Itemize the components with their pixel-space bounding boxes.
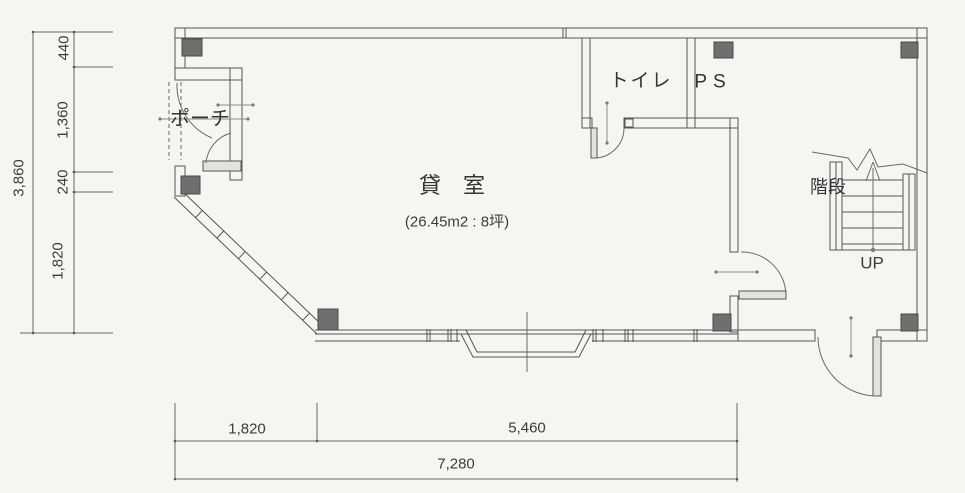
stairs-structure [812, 149, 927, 252]
stair-door-swing-arc [741, 252, 786, 295]
column [181, 176, 200, 194]
floor-plan: 貸 室 (26.45m2 : 8坪) ポーチ トイレ PS 階段 UP 440 … [0, 0, 965, 493]
column [713, 314, 731, 331]
dim-left-1360: 1,360 [56, 101, 71, 139]
column [901, 42, 918, 58]
toilet-door-swing-arc [594, 128, 624, 158]
room-label-porch: ポーチ [170, 109, 230, 129]
room-area-label: (26.45m2 : 8坪) [405, 215, 509, 230]
porch-door-leaf [203, 161, 241, 171]
toilet-door-leaf [591, 128, 597, 158]
column [901, 314, 918, 331]
room-label-toilet: トイレ [609, 72, 672, 91]
toilet-door-stop [625, 119, 633, 127]
column [318, 309, 338, 330]
stairs-up-arrow [866, 162, 880, 252]
stairwell-west-wall [714, 118, 852, 358]
stairwell-south-wall [738, 330, 927, 396]
exterior-door-swing-arc [818, 337, 877, 396]
columns [181, 39, 918, 331]
dim-bottom-5460: 5,460 [508, 421, 546, 436]
bay-window [461, 312, 591, 372]
dim-bottom-1820: 1,820 [228, 422, 266, 437]
dim-left-total-3860: 3,860 [12, 159, 27, 197]
stairs-up-label: UP [860, 255, 884, 272]
dim-left-240: 240 [56, 169, 71, 194]
south-window-wall [315, 312, 738, 372]
dim-left-1820: 1,820 [51, 242, 66, 280]
dim-left-440: 440 [57, 35, 72, 60]
room-label-ps: PS [694, 73, 731, 92]
stairs-break-line [812, 149, 927, 173]
exterior-door-leaf [873, 337, 881, 396]
window-mullions [427, 329, 697, 342]
room-label-stairs: 階段 [810, 178, 846, 196]
dim-bottom-total-7280: 7,280 [437, 457, 475, 472]
room-label-rental: 貸 室 [419, 175, 485, 197]
floor-plan-linework [0, 0, 965, 493]
column [182, 39, 202, 56]
stair-door-leaf [739, 291, 786, 299]
diagonal-window-wall [174, 190, 324, 334]
column [714, 42, 733, 58]
